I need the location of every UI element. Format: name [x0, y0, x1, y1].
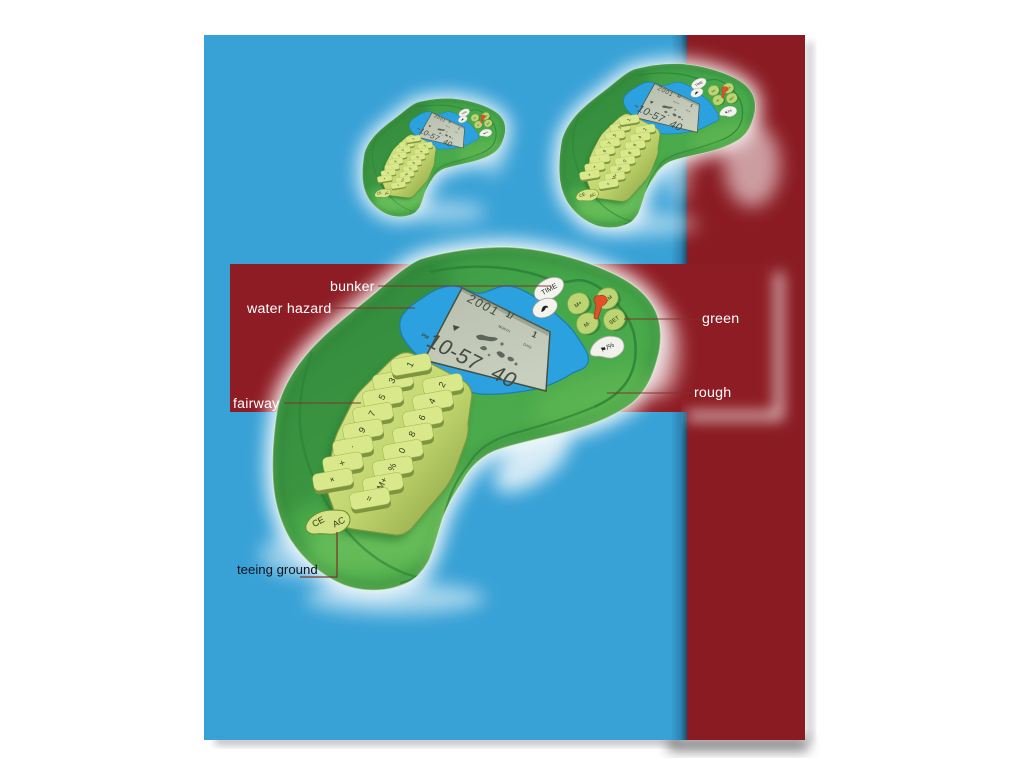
svg-text:water hazard: water hazard — [246, 301, 331, 317]
svg-text:bunker: bunker — [330, 279, 375, 295]
svg-text:fairway: fairway — [233, 396, 280, 412]
svg-text:rough: rough — [694, 385, 731, 401]
svg-text:green: green — [702, 311, 739, 327]
svg-text:teeing ground: teeing ground — [237, 562, 318, 577]
